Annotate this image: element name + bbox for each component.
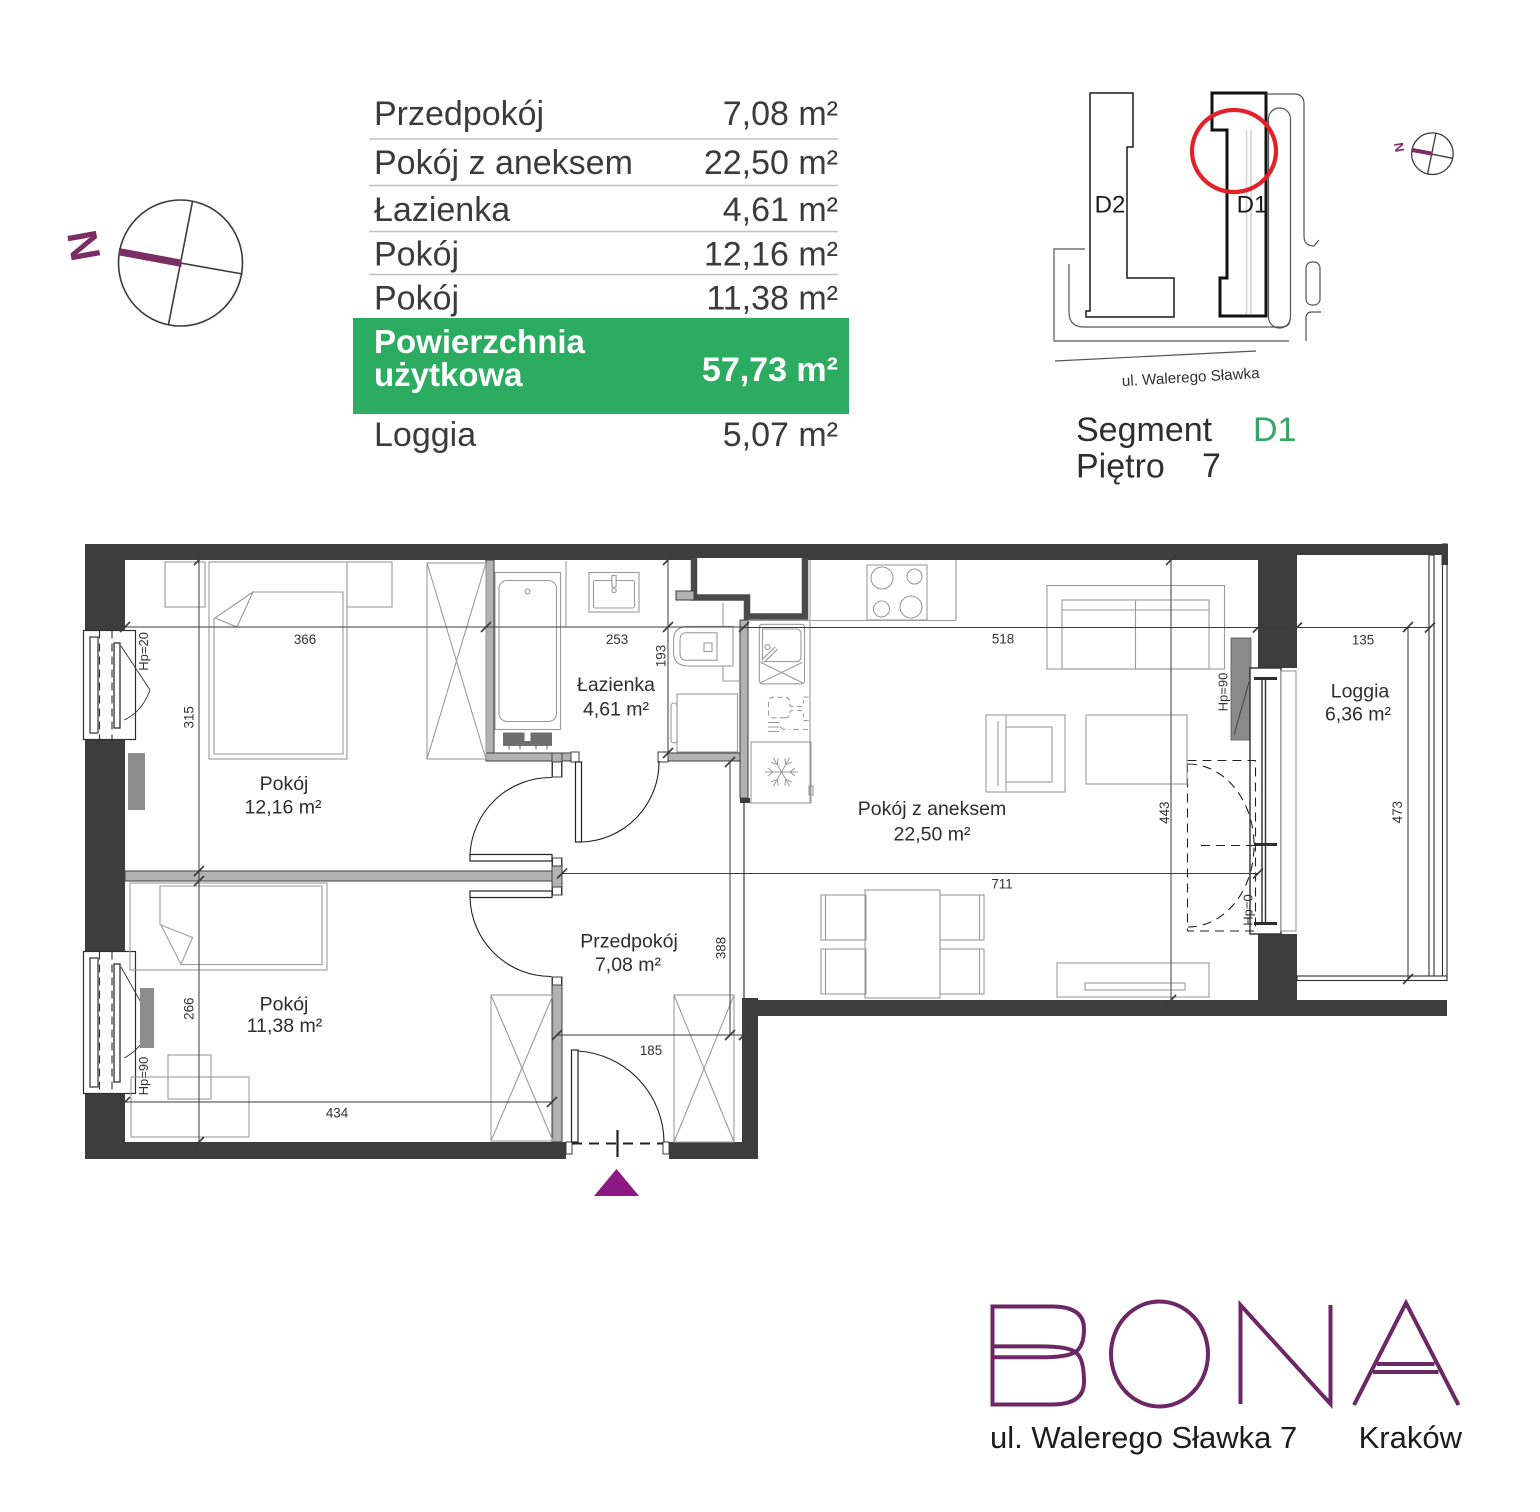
- svg-text:Pokój: Pokój: [374, 280, 459, 318]
- svg-text:Łazienka: Łazienka: [374, 191, 510, 229]
- svg-text:Pokój: Pokój: [260, 773, 309, 795]
- svg-text:Loggia: Loggia: [1331, 681, 1390, 703]
- svg-text:12,16 m²: 12,16 m²: [704, 236, 838, 274]
- svg-text:22,50 m²: 22,50 m²: [894, 824, 971, 846]
- svg-text:266: 266: [181, 998, 196, 1020]
- svg-text:473: 473: [1390, 801, 1405, 823]
- svg-text:12,16 m²: 12,16 m²: [245, 797, 322, 819]
- svg-text:5,07 m²: 5,07 m²: [723, 416, 838, 454]
- svg-text:185: 185: [640, 1043, 662, 1058]
- svg-text:6,36 m²: 6,36 m²: [1325, 704, 1392, 726]
- svg-text:D2: D2: [1095, 192, 1126, 219]
- svg-text:315: 315: [181, 706, 196, 728]
- svg-text:Hp=90: Hp=90: [136, 1057, 151, 1096]
- svg-text:4,61 m²: 4,61 m²: [583, 699, 650, 721]
- svg-text:434: 434: [326, 1106, 349, 1121]
- svg-text:388: 388: [714, 937, 729, 959]
- svg-text:Hp=90: Hp=90: [1216, 673, 1231, 712]
- svg-text:Łazienka: Łazienka: [577, 674, 655, 696]
- svg-text:D1: D1: [1237, 192, 1268, 219]
- svg-text:4,61 m²: 4,61 m²: [723, 191, 838, 229]
- svg-text:Hp=0: Hp=0: [1241, 894, 1256, 925]
- svg-text:Kraków: Kraków: [1359, 1420, 1463, 1455]
- svg-text:Pokój z aneksem: Pokój z aneksem: [374, 144, 633, 182]
- svg-text:366: 366: [294, 632, 316, 647]
- svg-text:Pokój: Pokój: [374, 236, 459, 274]
- svg-text:135: 135: [1352, 633, 1374, 648]
- svg-text:253: 253: [606, 632, 628, 647]
- svg-text:711: 711: [991, 877, 1012, 892]
- svg-text:Pokój: Pokój: [260, 994, 309, 1016]
- svg-text:D1: D1: [1253, 411, 1296, 449]
- svg-text:7: 7: [1202, 447, 1221, 485]
- svg-text:7,08 m²: 7,08 m²: [723, 95, 838, 133]
- svg-text:443: 443: [1157, 802, 1172, 824]
- svg-text:Przedpokój: Przedpokój: [374, 95, 544, 133]
- svg-text:11,38 m²: 11,38 m²: [247, 1015, 323, 1037]
- svg-text:518: 518: [992, 632, 1014, 647]
- svg-text:Hp=20: Hp=20: [136, 632, 151, 671]
- svg-text:ul. Walerego Sławka 7: ul. Walerego Sławka 7: [990, 1420, 1297, 1455]
- svg-text:Loggia: Loggia: [374, 416, 476, 454]
- svg-text:Pokój z aneksem: Pokój z aneksem: [858, 798, 1007, 820]
- svg-text:Segment: Segment: [1076, 411, 1213, 449]
- svg-text:193: 193: [653, 645, 668, 667]
- svg-text:Powierzchnia: Powierzchnia: [374, 323, 586, 360]
- svg-text:11,38 m²: 11,38 m²: [706, 280, 838, 318]
- svg-text:22,50 m²: 22,50 m²: [704, 144, 838, 182]
- svg-text:Przedpokój: Przedpokój: [580, 931, 678, 953]
- svg-text:użytkowa: użytkowa: [374, 356, 523, 393]
- svg-text:57,73 m²: 57,73 m²: [702, 351, 838, 389]
- svg-text:7,08 m²: 7,08 m²: [595, 954, 662, 976]
- svg-text:Piętro: Piętro: [1076, 448, 1165, 486]
